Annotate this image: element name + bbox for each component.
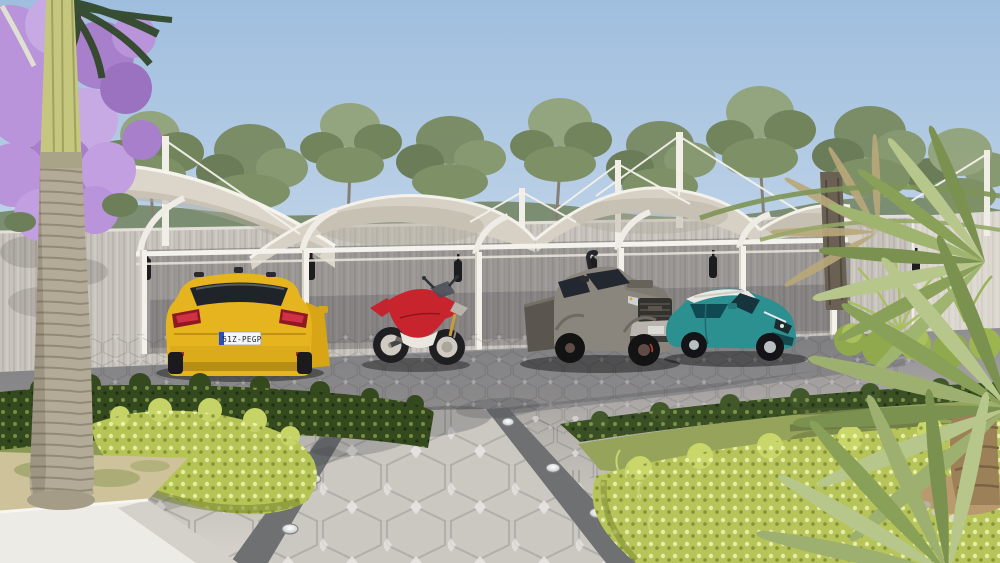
license-plate: 51Z-PEGP (219, 332, 262, 345)
hood-scoop (627, 280, 653, 288)
license-plate-text: 51Z-PEGP (222, 335, 261, 344)
roof-rail (266, 272, 276, 277)
rear-tire (297, 352, 312, 374)
rear-tire (168, 352, 183, 374)
roof-rail (194, 272, 204, 277)
scene-canvas: 51Z-PEGP (0, 0, 1000, 563)
shark-fin-antenna (234, 267, 243, 273)
front-plate (648, 326, 664, 334)
render-image: 51Z-PEGP (0, 0, 1000, 563)
side-mirror (728, 303, 737, 309)
side-mirror (580, 276, 589, 282)
side-mirror (318, 306, 328, 313)
